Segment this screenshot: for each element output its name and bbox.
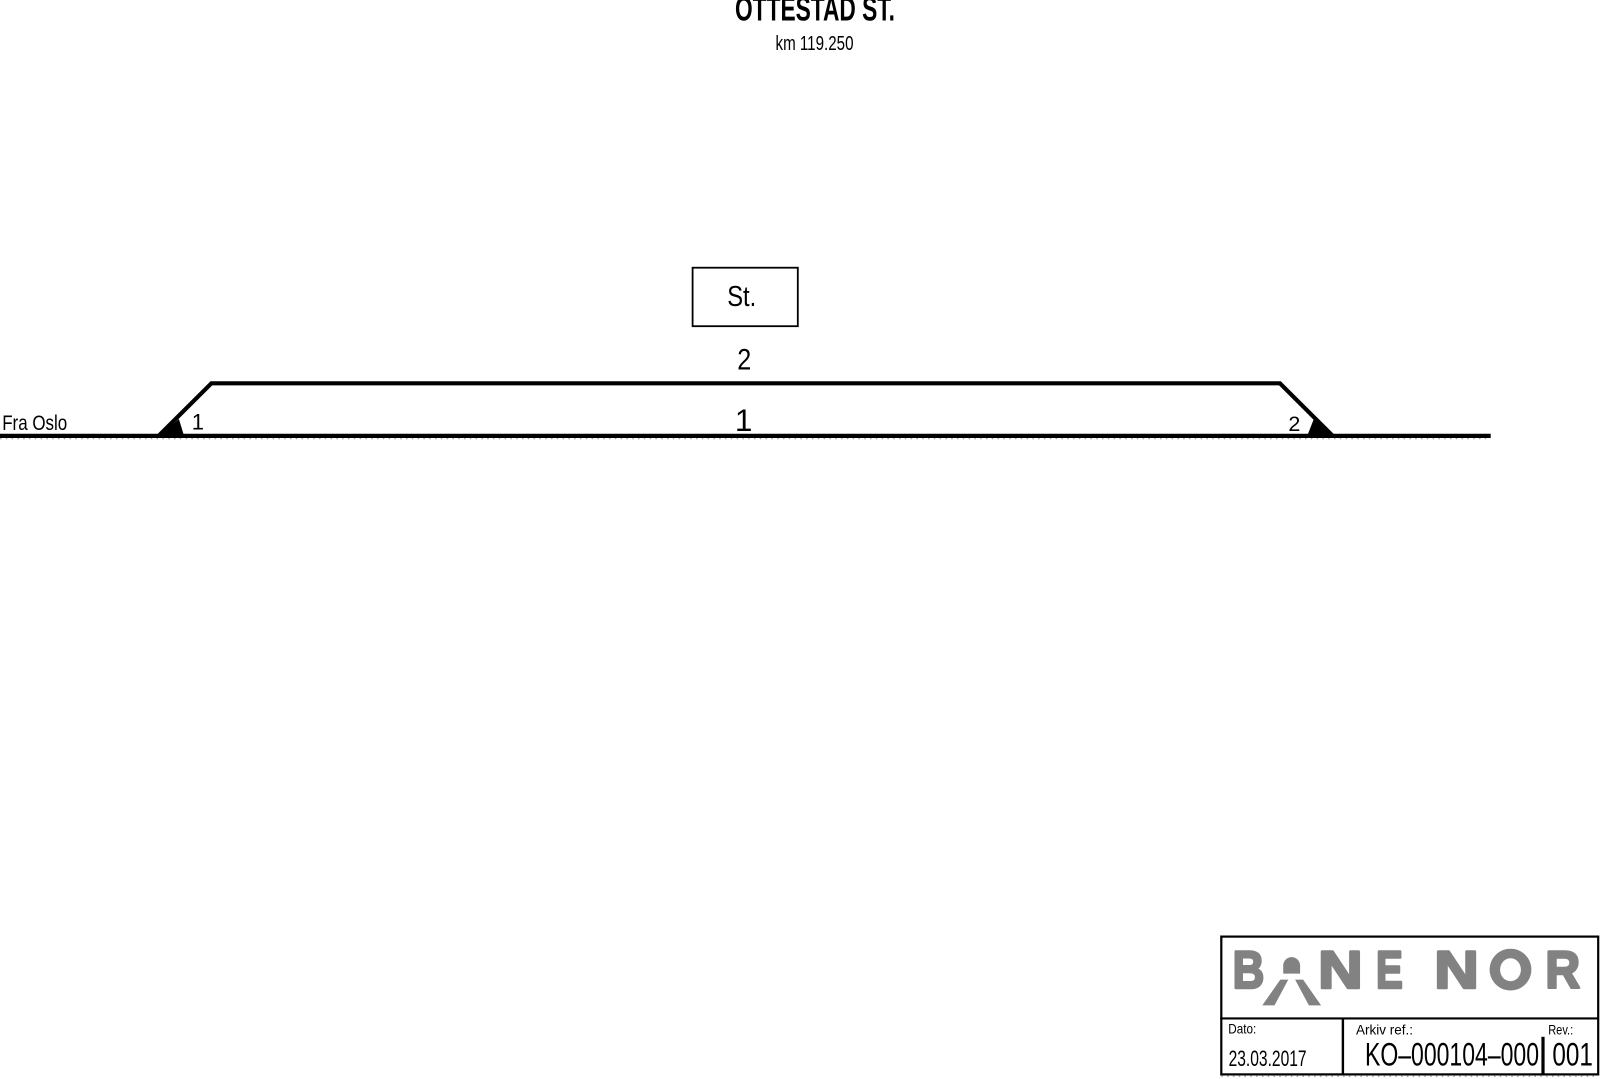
svg-text:R: R xyxy=(1545,940,1580,1000)
svg-text:2: 2 xyxy=(737,344,751,377)
svg-text:km 119.250: km 119.250 xyxy=(776,33,854,55)
svg-text:Arkiv ref.:: Arkiv ref.: xyxy=(1356,1022,1413,1037)
svg-text:E: E xyxy=(1376,940,1403,1000)
svg-text:1: 1 xyxy=(735,402,753,438)
svg-text:23.03.2017: 23.03.2017 xyxy=(1229,1046,1307,1071)
svg-text:St.: St. xyxy=(727,281,756,313)
svg-text:Dato:: Dato: xyxy=(1228,1020,1256,1036)
svg-text:KO–000104–000: KO–000104–000 xyxy=(1365,1037,1539,1073)
svg-text:001: 001 xyxy=(1552,1037,1593,1073)
svg-text:2: 2 xyxy=(1288,412,1300,436)
svg-text:N: N xyxy=(1318,941,1363,1000)
svg-text:B: B xyxy=(1233,941,1265,1000)
svg-text:1: 1 xyxy=(192,409,204,434)
svg-text:Rev.:: Rev.: xyxy=(1548,1022,1573,1037)
svg-text:OTTESTAD ST.: OTTESTAD ST. xyxy=(735,0,895,29)
svg-text:N: N xyxy=(1434,941,1479,1000)
svg-text:Fra Oslo: Fra Oslo xyxy=(2,411,67,435)
